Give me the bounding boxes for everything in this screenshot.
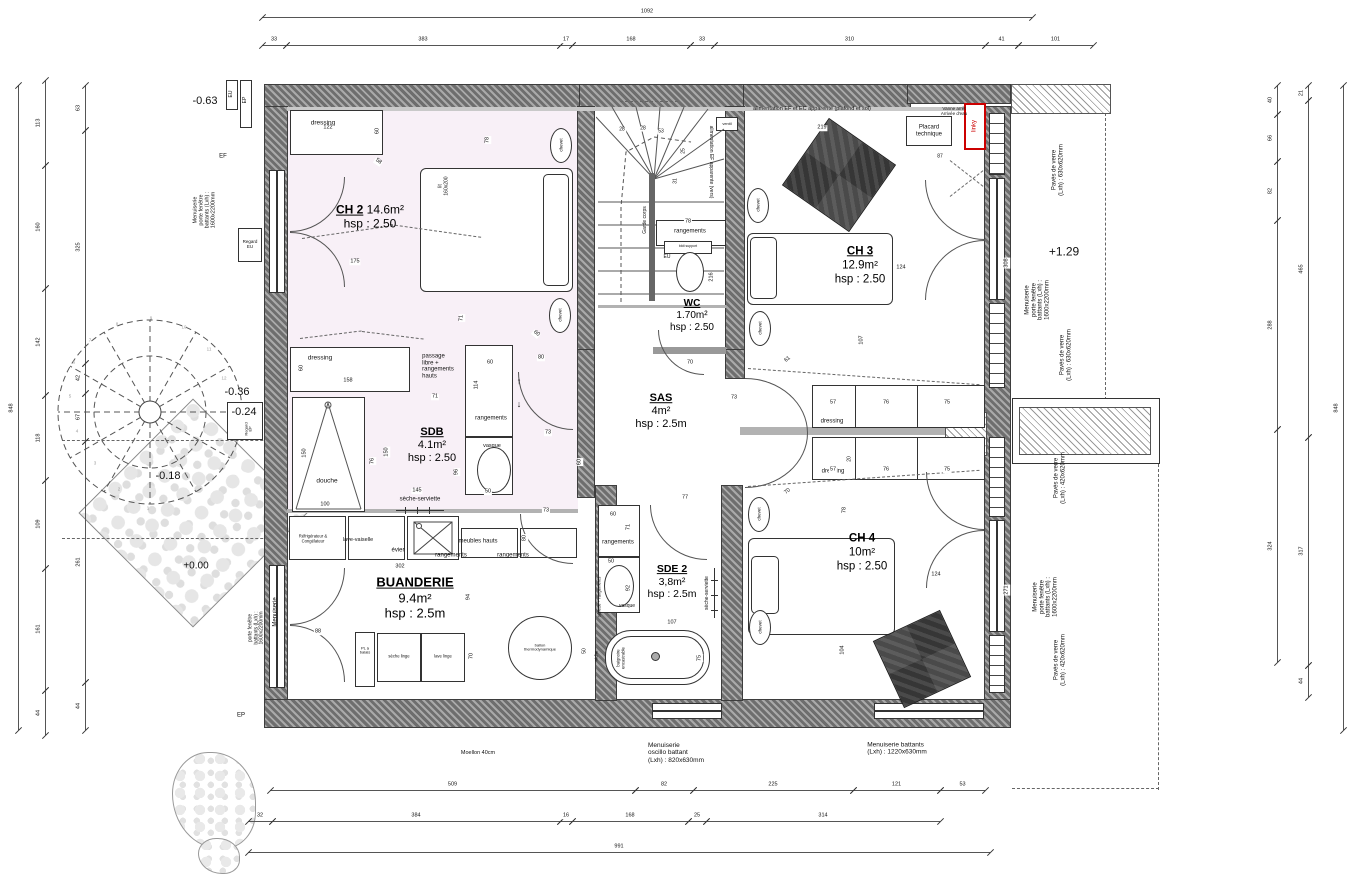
annotation-text: Menuiserie porte fenêtre battants (Lxh) … bbox=[1033, 577, 1060, 617]
furniture-pillow bbox=[750, 237, 777, 299]
dim-label: 158 bbox=[342, 378, 353, 384]
wall-segment bbox=[580, 85, 744, 107]
annotation-text: EP bbox=[237, 713, 245, 720]
dim-tick bbox=[15, 727, 22, 734]
dim-label: 70 bbox=[686, 360, 694, 366]
room-hsp: hsp : 2.50 bbox=[408, 453, 456, 466]
dim-label: 78 bbox=[842, 506, 848, 514]
furniture-pillow bbox=[751, 556, 779, 614]
annotation-text: 3 bbox=[94, 460, 97, 465]
door-arc bbox=[925, 240, 985, 300]
dim-label: 25 bbox=[682, 147, 687, 155]
room-name: SAS bbox=[635, 392, 686, 405]
dimension-line bbox=[853, 790, 940, 791]
dim-label: 509 bbox=[447, 782, 458, 788]
dim-label: 73 bbox=[542, 508, 550, 514]
property-dashed-line bbox=[1012, 788, 1159, 789]
room-label-sde2: SDE 2 3,8m² hsp : 2.5m bbox=[647, 563, 696, 601]
wall-segment bbox=[578, 350, 594, 497]
wall-segment bbox=[726, 107, 744, 350]
dimension-line bbox=[85, 441, 86, 682]
glass-block-window bbox=[989, 437, 1005, 517]
dim-label: 848 bbox=[1334, 402, 1340, 413]
annotation-text: chevet bbox=[757, 620, 762, 633]
dim-label: 107 bbox=[859, 334, 865, 345]
room-hsp: hsp : 2.50 bbox=[670, 322, 714, 334]
dim-label: 114 bbox=[474, 380, 480, 391]
grid-divider bbox=[855, 437, 856, 480]
dim-label: 53 bbox=[958, 782, 966, 788]
room-name: SDB bbox=[408, 426, 456, 439]
wall-segment bbox=[722, 486, 742, 700]
dim-label: 161 bbox=[36, 623, 42, 634]
door-arc bbox=[925, 180, 985, 240]
dim-label: 80 bbox=[537, 355, 545, 361]
door-arc bbox=[926, 530, 984, 588]
dim-label: 44 bbox=[76, 702, 82, 710]
dim-label: 122 bbox=[322, 125, 333, 131]
dim-label: 33 bbox=[698, 37, 706, 43]
exterior-wall-corner bbox=[1012, 85, 1110, 113]
annotation-text: rangements bbox=[674, 229, 706, 236]
room-name: CH 3 bbox=[835, 245, 886, 259]
annotation-text: niche bbox=[593, 651, 598, 662]
dim-label: 60 bbox=[299, 364, 305, 372]
dimension-line bbox=[714, 45, 985, 46]
dim-label: 848 bbox=[9, 402, 15, 413]
floor-plan-canvas: CH 2 14.6m² hsp : 2.50 SDB 4.1m² hsp : 2… bbox=[0, 0, 1357, 874]
window bbox=[269, 170, 285, 293]
bathtub-drain bbox=[651, 652, 660, 661]
dimension-line bbox=[690, 45, 714, 46]
room-hsp: hsp : 2.50 bbox=[336, 217, 404, 231]
door-arc bbox=[745, 433, 808, 488]
dimension-line bbox=[706, 821, 940, 822]
dim-label: 107 bbox=[666, 620, 677, 626]
dim-label: 308 bbox=[1004, 257, 1010, 268]
furniture-storage bbox=[598, 505, 640, 557]
utility-box-ep bbox=[240, 80, 252, 128]
dim-label: 73 bbox=[544, 430, 552, 436]
annotation-text: 4 bbox=[76, 428, 79, 433]
room-name: CH 4 bbox=[837, 532, 888, 546]
dim-label: 150 bbox=[302, 447, 308, 458]
dim-label: 50 bbox=[607, 559, 615, 565]
dimension-line bbox=[272, 821, 560, 822]
annotation-text: chevet bbox=[558, 138, 563, 151]
annotation-text: 7 bbox=[89, 337, 92, 342]
annotation-text: chevet bbox=[757, 321, 762, 334]
annotation-text: ballon thermodynamique bbox=[524, 644, 556, 653]
door-arc bbox=[290, 568, 345, 625]
dim-label: 76 bbox=[370, 457, 376, 465]
dimension-line bbox=[45, 165, 46, 288]
annotation-text: douche bbox=[316, 477, 337, 484]
dim-label: 175 bbox=[349, 259, 360, 265]
room-label-sas: SAS 4m² hsp : 2.5m bbox=[635, 392, 686, 432]
wall-segment bbox=[744, 85, 910, 107]
dimension-line bbox=[248, 852, 990, 853]
annotation-text: Menuiserie bbox=[273, 597, 280, 626]
annotation-text: -0.18 bbox=[155, 470, 180, 482]
annotation-text: Placard technique bbox=[916, 124, 942, 137]
dim-tick bbox=[1090, 42, 1097, 49]
dim-label: 302 bbox=[394, 564, 405, 570]
annotation-text: 9 bbox=[150, 315, 153, 320]
spiral-staircase bbox=[55, 315, 245, 505]
dimension-line bbox=[248, 821, 272, 822]
annotation-text: sèche linge bbox=[388, 655, 409, 660]
dim-tick bbox=[82, 727, 89, 734]
dim-label: 60 bbox=[375, 127, 381, 135]
dimension-line bbox=[1277, 85, 1278, 114]
dimension-line bbox=[940, 790, 985, 791]
wall-segment bbox=[726, 350, 744, 378]
dim-label: 60 bbox=[577, 458, 583, 466]
annotation-text: sèche-serviette bbox=[705, 576, 711, 610]
radiator-tick bbox=[429, 507, 430, 514]
annotation-text: Menuiserie battants (Lxh) : 1220x630mm bbox=[867, 742, 927, 757]
annotation-text: EU bbox=[664, 255, 671, 261]
room-label-sdb: SDB 4.1m² hsp : 2.50 bbox=[408, 426, 456, 466]
dim-label: 317 bbox=[1299, 545, 1305, 556]
dimension-line bbox=[688, 821, 706, 822]
dim-label: 50 bbox=[583, 647, 588, 655]
annotation-text: dressing bbox=[821, 419, 844, 426]
window bbox=[652, 703, 722, 719]
annotation-text: lave linge bbox=[434, 655, 452, 660]
dim-label: 42 bbox=[76, 374, 82, 382]
dimension-line bbox=[85, 363, 86, 393]
dim-label: 61 bbox=[783, 355, 793, 364]
dim-tick bbox=[1274, 659, 1281, 666]
annotation-text: Moellon 40cm bbox=[461, 750, 495, 756]
annotation-text: rangements bbox=[435, 553, 467, 560]
dim-label: 124 bbox=[930, 572, 941, 578]
dim-label: 219 bbox=[816, 125, 827, 131]
annotation-text: ventil bbox=[722, 122, 731, 126]
dimension-line bbox=[286, 45, 560, 46]
wardrobe-dashed-line bbox=[748, 368, 980, 385]
glass-block-window bbox=[989, 113, 1005, 175]
dim-label: 77 bbox=[681, 495, 689, 501]
annotation-text: Réfrigérateur & Congélateur bbox=[299, 534, 327, 543]
dim-label: 76 bbox=[882, 467, 890, 473]
dimension-line bbox=[985, 45, 1018, 46]
radiator-tick bbox=[711, 580, 718, 581]
furniture-dressing bbox=[290, 110, 383, 155]
room-name: BUANDERIE bbox=[376, 575, 453, 591]
dim-label: 70 bbox=[469, 652, 475, 660]
room-hsp: hsp : 2.50 bbox=[837, 560, 888, 574]
dim-label: 310 bbox=[844, 37, 855, 43]
annotation-text: lit 160x200 bbox=[438, 176, 449, 195]
dimension-line bbox=[45, 568, 46, 690]
annotation-text: 8 bbox=[116, 321, 119, 326]
annotation-text: +1.29 bbox=[1049, 245, 1079, 258]
annotation-text: passage libre + rangements hauts bbox=[422, 354, 454, 381]
dim-label: 44 bbox=[1299, 677, 1305, 685]
room-area: 9.4m² bbox=[376, 590, 453, 606]
annotation-text: porte fenêtre battants (Lxh) : 1600x2200… bbox=[249, 611, 266, 644]
dim-label: 41 bbox=[997, 37, 1005, 43]
glass-block-window bbox=[989, 635, 1005, 693]
annotation-text: +0.00 bbox=[183, 560, 208, 571]
dimension-line bbox=[270, 790, 635, 791]
dim-label: 76 bbox=[882, 400, 890, 406]
dim-label: 160 bbox=[36, 221, 42, 232]
annotation-text: tablette + rangements bbox=[598, 577, 603, 618]
room-area: 4.1m² bbox=[408, 439, 456, 452]
dim-label: 109 bbox=[36, 518, 42, 529]
dim-label: 82 bbox=[1268, 186, 1274, 194]
dim-label: 104 bbox=[840, 644, 846, 655]
dim-tick bbox=[982, 787, 989, 794]
room-area: 12.9m² bbox=[835, 259, 886, 273]
dim-label: 118 bbox=[36, 432, 42, 443]
annotation-text: chevet bbox=[557, 308, 562, 321]
broom-closet bbox=[355, 632, 375, 687]
annotation-text: Menuiserie porte fenêtre battants (Lxh) … bbox=[193, 192, 218, 229]
annotation-text: EU bbox=[229, 91, 235, 98]
dim-label: 88 bbox=[314, 629, 322, 635]
dim-label: 73 bbox=[730, 395, 738, 401]
annotation-text: Vanne arrêt Arrivée d'eau bbox=[941, 106, 967, 116]
annotation-text: Pavés de verre (Lxh) : 630x620mm bbox=[1051, 144, 1064, 196]
annotation-text: Pavés de verre (Lxh) : 420x620mm bbox=[1053, 452, 1066, 504]
dimension-line bbox=[85, 85, 86, 130]
dimension-line bbox=[1308, 100, 1309, 437]
annotation-text: Pavés de verre (Lxh) : 630x620mm bbox=[1059, 329, 1072, 381]
dim-label: 100 bbox=[319, 502, 330, 508]
dim-label: 71 bbox=[626, 523, 632, 531]
annotation-text: vasque bbox=[483, 443, 501, 449]
tree-shrub bbox=[198, 838, 240, 874]
room-area: 14.6m² bbox=[367, 203, 404, 217]
dim-label: 261 bbox=[76, 556, 82, 567]
dim-label: 44 bbox=[36, 708, 42, 716]
dim-label: 80 bbox=[522, 534, 528, 542]
dim-label: 113 bbox=[36, 117, 42, 128]
room-name: CH 2 bbox=[336, 203, 363, 217]
dim-label: 124 bbox=[895, 265, 906, 271]
room-area: 1.70m² bbox=[670, 310, 714, 322]
dim-label: 28 bbox=[618, 128, 626, 133]
dim-label: 57 bbox=[829, 467, 837, 473]
dim-label: 168 bbox=[625, 37, 636, 43]
dim-tick bbox=[937, 818, 944, 825]
room-label-ch3: CH 3 12.9m² hsp : 2.50 bbox=[835, 245, 886, 286]
annotation-text: chevet bbox=[755, 198, 760, 211]
dimension-line bbox=[45, 80, 46, 165]
radiator bbox=[396, 510, 444, 511]
dim-label: 325 bbox=[76, 241, 82, 252]
dim-tick bbox=[987, 849, 994, 856]
annotation-text: Regard EU bbox=[243, 239, 258, 249]
annotation-text: Regard EP bbox=[245, 422, 254, 435]
dimension-line bbox=[572, 45, 690, 46]
window bbox=[989, 178, 1005, 300]
dim-label: 78 bbox=[485, 136, 491, 144]
dimension-line bbox=[45, 690, 46, 735]
annotation-text: ↑ bbox=[517, 376, 522, 386]
annotation-text: évier bbox=[391, 548, 404, 555]
annotation-text: EF bbox=[219, 154, 227, 161]
dim-label: 216 bbox=[709, 271, 715, 282]
dim-label: 28 bbox=[639, 127, 647, 132]
annotation-text: -0.36 bbox=[224, 386, 249, 398]
dim-label: 271 bbox=[1004, 584, 1010, 595]
dim-label: 31 bbox=[674, 177, 679, 185]
layout-dashed-line bbox=[62, 538, 288, 539]
property-dashed-line bbox=[1105, 113, 1106, 400]
annotation-text: rangements bbox=[475, 416, 507, 423]
dimension-line bbox=[1277, 429, 1278, 662]
dim-tick bbox=[42, 732, 49, 739]
dim-label: 225 bbox=[767, 782, 778, 788]
room-area: 4m² bbox=[635, 405, 686, 418]
dimension-line bbox=[262, 17, 1032, 18]
sink-basin bbox=[477, 447, 511, 493]
annotation-text: -0.24 bbox=[231, 406, 256, 418]
grid-divider bbox=[855, 385, 856, 428]
door-arc bbox=[926, 472, 984, 530]
dim-label: 288 bbox=[1268, 319, 1274, 330]
annotation-text: 12 bbox=[221, 375, 226, 380]
annotation-text: 1 bbox=[147, 505, 150, 510]
dim-label: 101 bbox=[1050, 37, 1061, 43]
dimension-line bbox=[1343, 85, 1344, 730]
dim-label: 25 bbox=[693, 813, 701, 819]
dimension-line bbox=[45, 288, 46, 395]
room-label-buanderie: BUANDERIE 9.4m² hsp : 2.5m bbox=[376, 575, 453, 622]
dim-label: 87 bbox=[936, 155, 944, 160]
dim-label: 32 bbox=[256, 813, 264, 819]
dim-label: 33 bbox=[270, 37, 278, 43]
dim-tick bbox=[1305, 694, 1312, 701]
rug bbox=[782, 118, 896, 232]
annotation-text: bâti support bbox=[679, 245, 697, 249]
dim-label: 17 bbox=[562, 37, 570, 43]
dimension-line bbox=[262, 45, 286, 46]
dimension-line bbox=[85, 130, 86, 363]
annotation-text: 2 bbox=[118, 486, 121, 491]
annotation-text: Menuiserie oscillo battant (Lxh) : 820x6… bbox=[648, 742, 704, 764]
room-label-wc: WC 1.70m² hsp : 2.50 bbox=[670, 298, 714, 334]
dim-label: 92 bbox=[626, 584, 632, 592]
dimension-line bbox=[1308, 665, 1309, 697]
dimension-line bbox=[85, 393, 86, 441]
annotation-text: lave-vaiselle bbox=[343, 537, 373, 543]
tree-shrub bbox=[172, 752, 256, 849]
dimension-line bbox=[85, 682, 86, 730]
dim-label: 63 bbox=[76, 103, 82, 111]
dimension-line bbox=[572, 821, 688, 822]
dim-label: 60 bbox=[486, 360, 494, 366]
annotation-text: 5 bbox=[69, 393, 72, 398]
dim-label: 16 bbox=[562, 813, 570, 819]
dim-label: 142 bbox=[36, 336, 42, 347]
dimension-line bbox=[1308, 437, 1309, 665]
annotation-text: alimentation EF et EC apparente (plafond… bbox=[753, 106, 871, 112]
dimension-line bbox=[18, 85, 19, 730]
room-area: 10m² bbox=[837, 546, 888, 560]
door-arc bbox=[650, 505, 707, 560]
radiator-tick bbox=[711, 610, 718, 611]
dimension-line bbox=[635, 790, 693, 791]
dim-label: 20 bbox=[848, 455, 853, 463]
room-hsp: hsp : 2.5m bbox=[635, 419, 686, 432]
dim-label: 121 bbox=[891, 782, 902, 788]
room-hsp: hsp : 2.50 bbox=[835, 273, 886, 287]
dim-label: 57 bbox=[829, 400, 837, 406]
dim-label: 75 bbox=[943, 467, 951, 473]
annotation-text: Pavés de verre (Lxh) : 420x620mm bbox=[1053, 634, 1066, 686]
dim-label: 150 bbox=[384, 446, 390, 457]
annotation-text: vasque bbox=[619, 604, 635, 610]
dimension-line bbox=[693, 790, 853, 791]
annotation-text: rangements bbox=[602, 540, 634, 547]
annotation-text: PL à balais bbox=[360, 647, 370, 656]
radiator-tick bbox=[711, 595, 718, 596]
furniture-pillow bbox=[543, 174, 569, 286]
dim-label: 21 bbox=[1299, 88, 1305, 96]
annotation-text: 10 bbox=[181, 324, 186, 329]
aeration-dashed-line bbox=[620, 101, 678, 102]
dim-label: 50 bbox=[484, 489, 492, 495]
dim-label: 991 bbox=[613, 844, 624, 850]
dim-label: 145 bbox=[411, 488, 422, 494]
dim-label: 70 bbox=[783, 487, 793, 496]
annotation-text: -0.63 bbox=[192, 95, 217, 107]
annotation-text: linky bbox=[972, 120, 979, 132]
dim-tick bbox=[1029, 14, 1036, 21]
annotation-text: rangements bbox=[497, 553, 529, 560]
dim-label: 96 bbox=[454, 468, 460, 476]
annotation-text: Garde corps bbox=[643, 206, 649, 234]
dim-label: 324 bbox=[1268, 540, 1274, 551]
dim-label: 383 bbox=[417, 37, 428, 43]
dim-label: 94 bbox=[466, 593, 472, 601]
annotation-text: 6 bbox=[73, 359, 76, 364]
dim-label: 384 bbox=[410, 813, 421, 819]
window bbox=[874, 703, 984, 719]
dim-label: 53 bbox=[657, 130, 665, 135]
dimension-line bbox=[45, 480, 46, 568]
wall-segment bbox=[578, 107, 594, 350]
dim-tick bbox=[1340, 727, 1347, 734]
room-hsp: hsp : 2.5m bbox=[647, 588, 696, 601]
annotation-text: EP bbox=[243, 97, 249, 104]
dim-label: 168 bbox=[624, 813, 635, 819]
door-arc bbox=[658, 330, 704, 375]
room-hsp: hsp : 2.5m bbox=[376, 606, 453, 622]
annotation-text: baignoire encastrable bbox=[616, 647, 625, 669]
door-arc bbox=[745, 378, 808, 433]
radiator-tick bbox=[417, 507, 418, 514]
room-label-ch4: CH 4 10m² hsp : 2.50 bbox=[837, 532, 888, 573]
dim-label: 465 bbox=[1299, 263, 1305, 274]
dim-label: 314 bbox=[817, 813, 828, 819]
dim-label: 78 bbox=[684, 219, 692, 225]
glass-block-window bbox=[989, 303, 1005, 388]
grid-divider bbox=[917, 385, 918, 428]
wall-segment bbox=[908, 85, 1010, 103]
annotation-text: ↓ bbox=[517, 399, 522, 409]
room-area: 3,8m² bbox=[647, 576, 696, 589]
wall-segment bbox=[265, 85, 580, 107]
room-name: WC bbox=[670, 298, 714, 310]
